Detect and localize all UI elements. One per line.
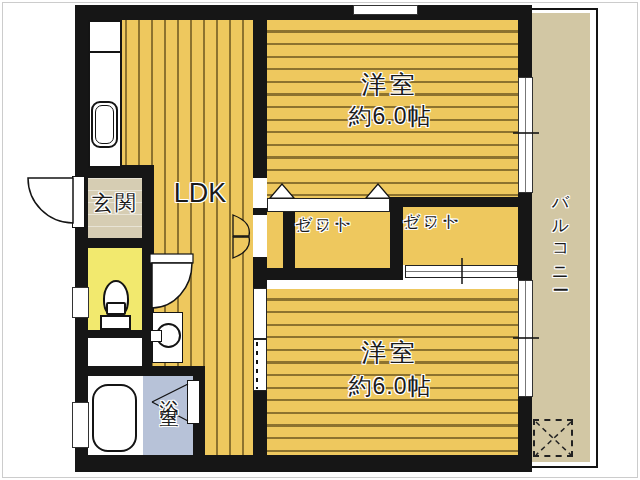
wall xyxy=(253,268,403,280)
closet-left-folding-door xyxy=(267,198,390,212)
window-bath xyxy=(72,402,89,448)
wall xyxy=(75,366,205,376)
bedroom-bottom-sliding-door xyxy=(253,339,267,391)
bedroom-bottom-label: 洋室 xyxy=(300,336,480,369)
bedroom-bottom-size: 約6.0帖 xyxy=(300,371,480,402)
toilet-seat xyxy=(106,302,126,315)
entrance-label: 玄関 xyxy=(88,189,142,217)
bathtub xyxy=(92,384,137,452)
washroom-floor xyxy=(88,338,142,366)
closet-right-sliding-door xyxy=(405,265,518,278)
balcony-label: バルコニー xyxy=(549,183,572,285)
bath-door-leaf xyxy=(187,380,200,424)
bedroom-bottom-sliding-door xyxy=(253,288,267,339)
kitchen-sink xyxy=(91,101,118,148)
ldk-label: LDK xyxy=(160,178,240,209)
bedroom-top-label: 洋室 xyxy=(300,68,480,101)
bedroom-top-size: 約6.0帖 xyxy=(300,101,480,132)
wall xyxy=(518,5,532,472)
kitchen-counter-divider xyxy=(88,51,122,53)
kitchen-sink-basin xyxy=(95,105,114,144)
sliding-window-top-bedroom xyxy=(518,77,533,193)
closet-niche-floor xyxy=(267,212,283,268)
evacuation-hatch xyxy=(533,419,573,457)
wall xyxy=(75,5,532,20)
wall xyxy=(253,390,267,455)
entry-door-leaf xyxy=(72,176,85,228)
wall xyxy=(390,197,518,207)
wall xyxy=(253,20,267,178)
wall xyxy=(142,338,152,366)
wall xyxy=(88,238,154,248)
wall xyxy=(88,330,154,338)
bedroom-top-doorway xyxy=(253,178,267,208)
washing-machine-detail xyxy=(150,330,162,342)
sliding-window-bottom-bedroom xyxy=(518,280,533,397)
bathroom-label: 浴室 xyxy=(156,385,182,399)
window-top xyxy=(353,5,418,15)
sliding-door-track xyxy=(256,342,258,389)
window-toilet xyxy=(72,287,89,318)
closet-right-line2: ゼット xyxy=(403,209,461,234)
wall xyxy=(75,5,88,460)
floor-plan: LDK 玄関 洋室 約6.0帖 洋室 約6.0帖 クロー ゼット クロー ゼット… xyxy=(0,0,640,480)
wall xyxy=(75,455,532,472)
closet-left-line2: ゼット xyxy=(295,212,353,237)
toilet-tank xyxy=(100,315,131,330)
wall xyxy=(283,212,295,268)
